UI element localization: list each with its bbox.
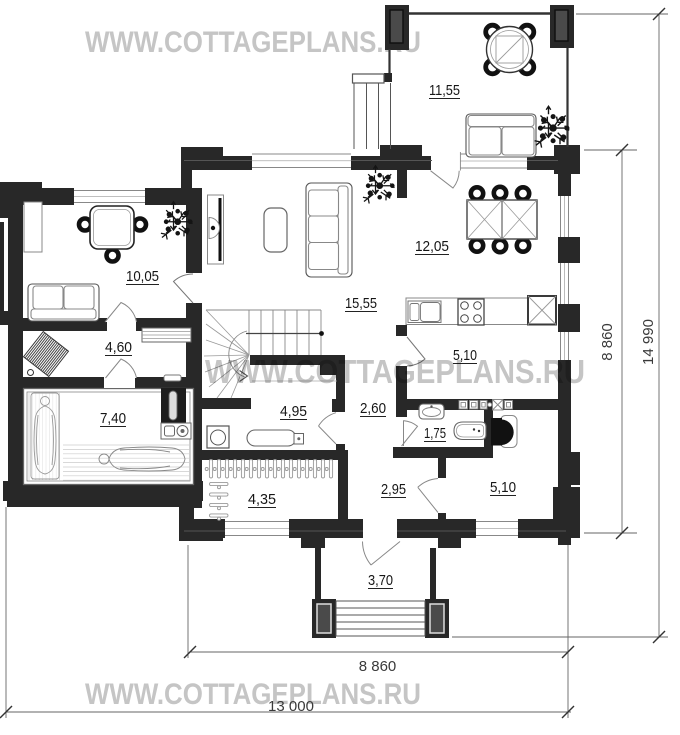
svg-text:2,95: 2,95 xyxy=(381,481,406,498)
svg-text:3,70: 3,70 xyxy=(368,572,393,589)
svg-text:WWW.COTTAGEPLANS.RU: WWW.COTTAGEPLANS.RU xyxy=(205,353,585,390)
svg-text:15,55: 15,55 xyxy=(345,295,377,312)
svg-text:5,10: 5,10 xyxy=(490,479,516,496)
svg-text:8 860: 8 860 xyxy=(599,323,616,361)
svg-text:4,60: 4,60 xyxy=(105,339,132,356)
svg-text:13 000: 13 000 xyxy=(268,698,314,715)
svg-text:1,75: 1,75 xyxy=(424,425,446,442)
svg-text:WWW.COTTAGEPLANS.RU: WWW.COTTAGEPLANS.RU xyxy=(85,26,421,59)
svg-text:4,35: 4,35 xyxy=(248,491,276,508)
svg-text:2,60: 2,60 xyxy=(360,400,386,417)
svg-text:11,55: 11,55 xyxy=(429,82,460,99)
svg-text:14 990: 14 990 xyxy=(640,319,657,365)
svg-text:7,40: 7,40 xyxy=(100,410,126,427)
svg-text:10,05: 10,05 xyxy=(126,268,159,285)
svg-text:8 860: 8 860 xyxy=(359,658,397,675)
svg-text:WWW.COTTAGEPLANS.RU: WWW.COTTAGEPLANS.RU xyxy=(85,678,421,711)
svg-text:4,95: 4,95 xyxy=(280,403,307,420)
svg-text:12,05: 12,05 xyxy=(415,238,449,255)
